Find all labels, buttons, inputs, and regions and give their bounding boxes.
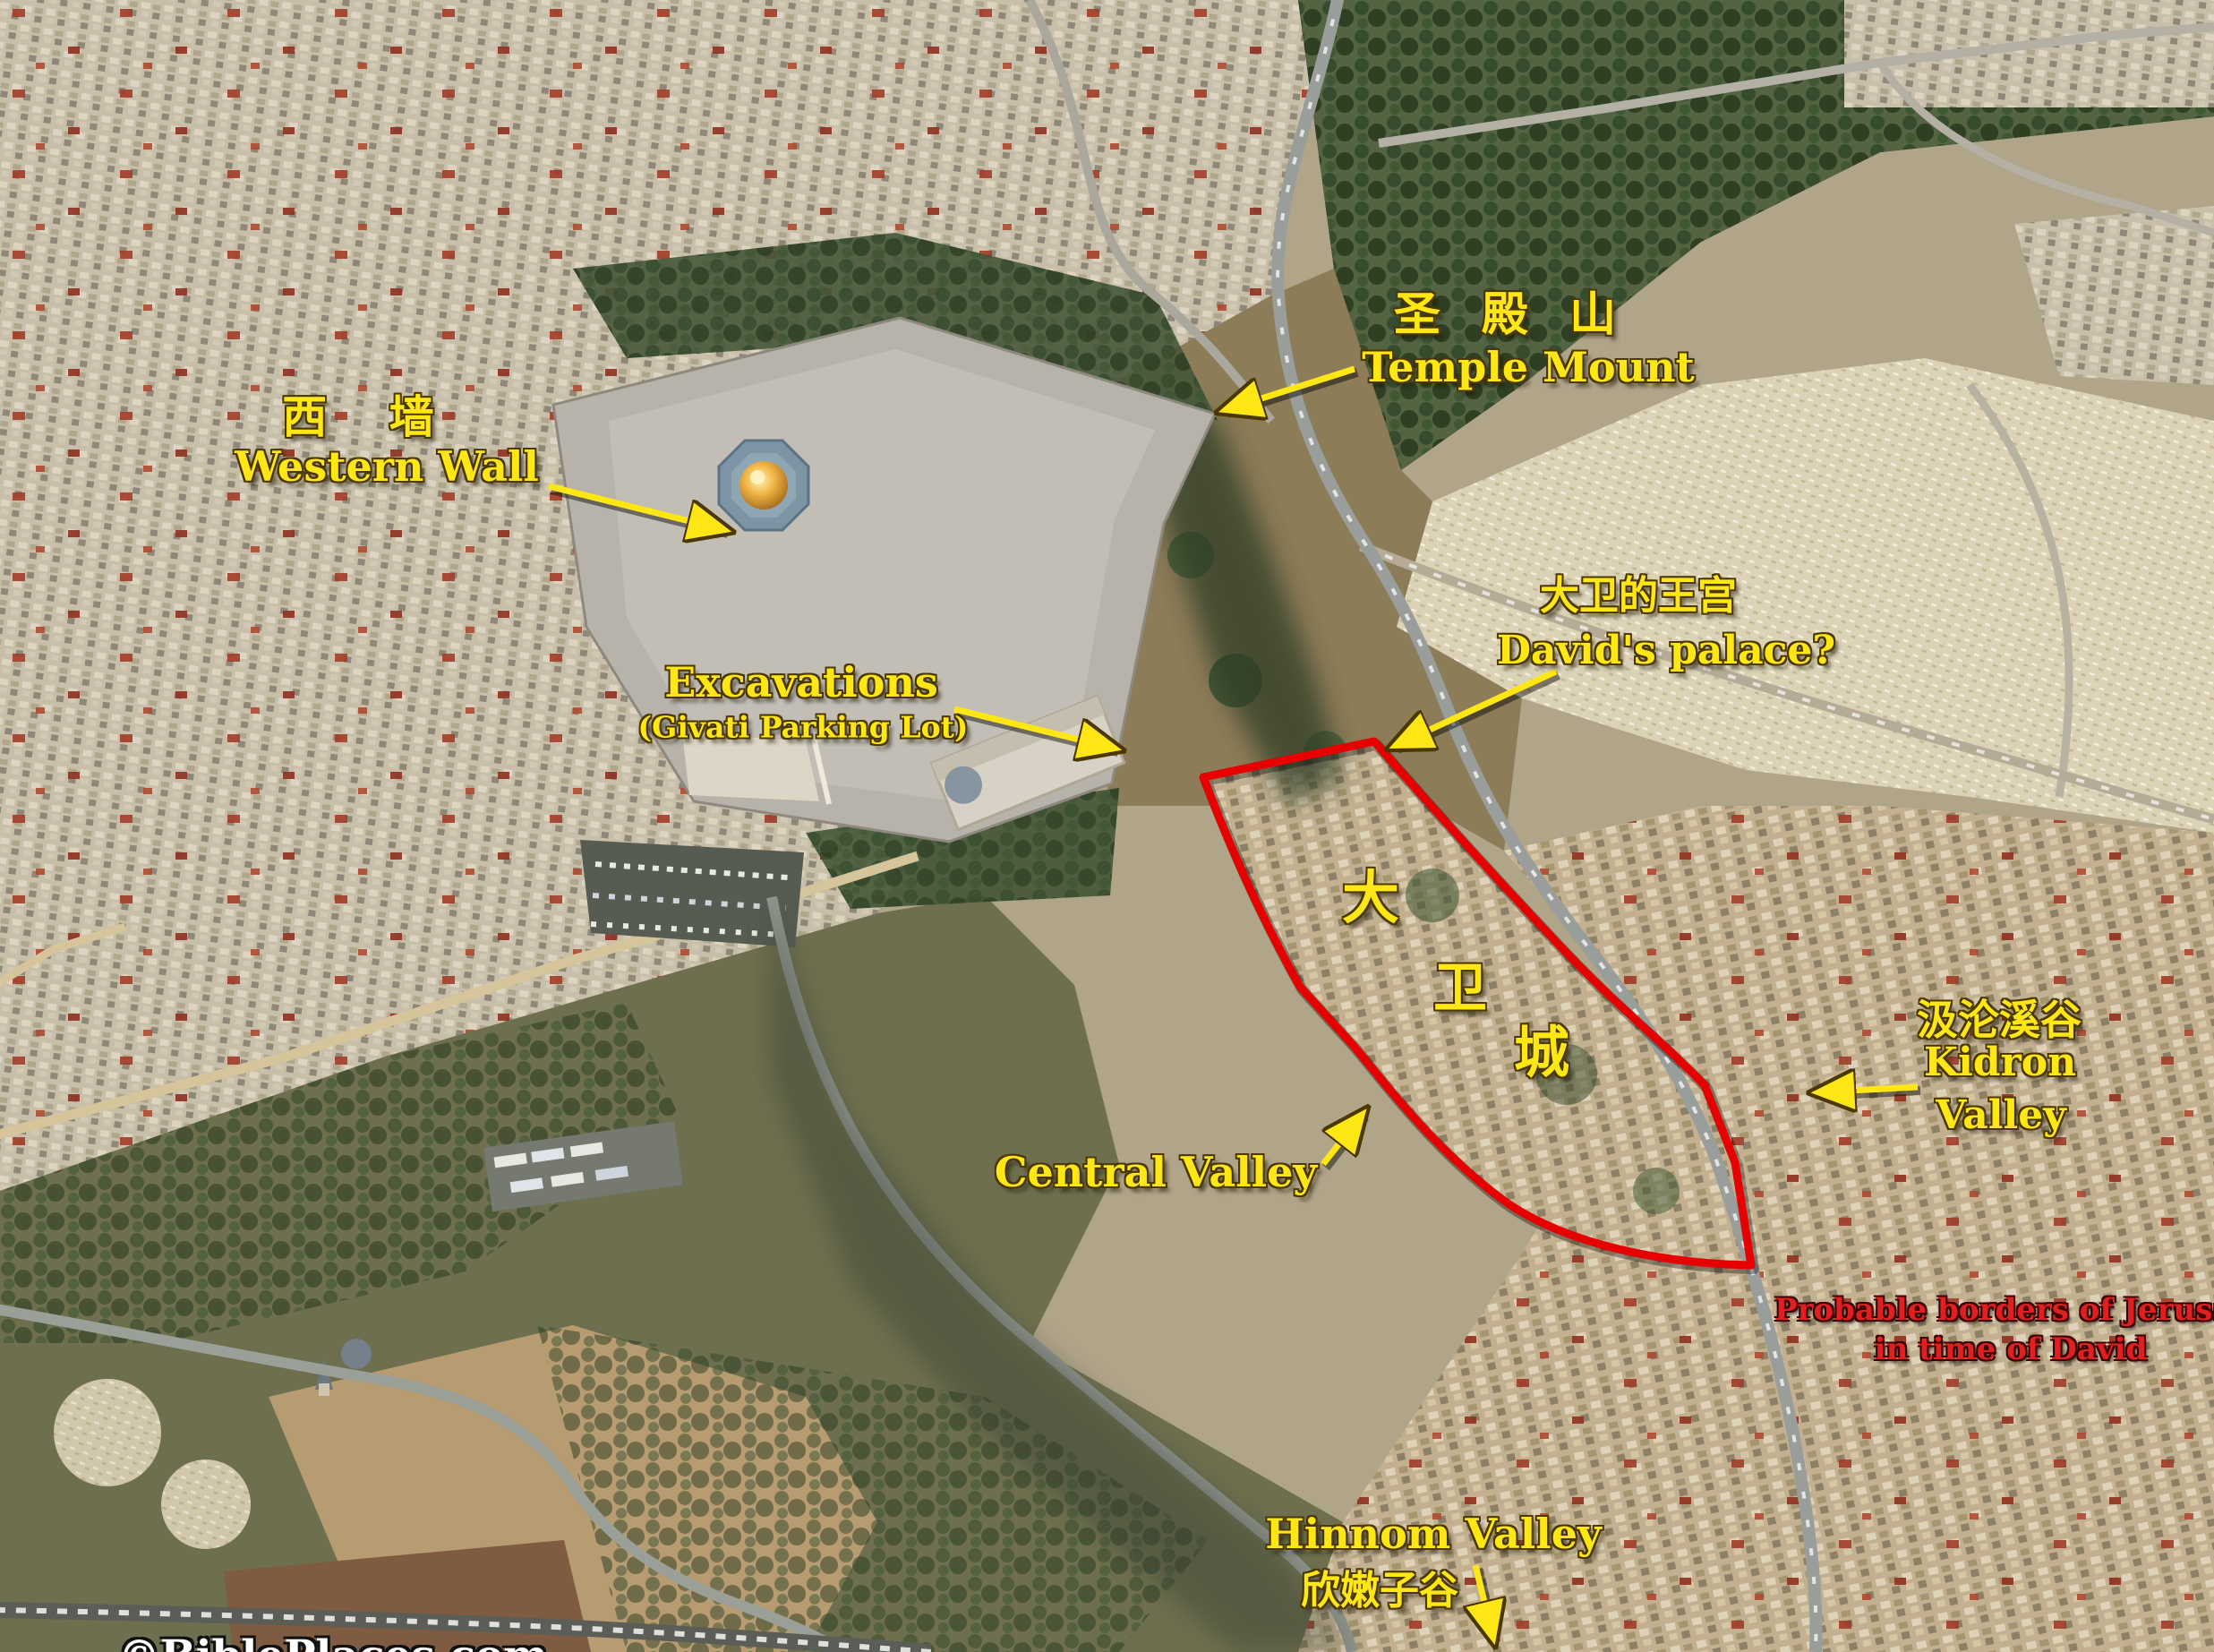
- hinnom-valley-label-zh: 欣嫩子谷: [1301, 1571, 1458, 1611]
- excavations-sublabel: (Givati Parking Lot): [638, 713, 969, 742]
- western-wall-label-zh: 西 墙: [282, 395, 457, 440]
- central-valley-label: Central Valley: [995, 1151, 1317, 1193]
- excavations-label: Excavations: [664, 662, 938, 703]
- borders-caption-line1: Probable borders of Jerusalem: [1774, 1295, 2214, 1325]
- watermark: ©BiblePlaces.com: [118, 1635, 548, 1652]
- kidron-valley-label-en1: Kidron: [1924, 1043, 2076, 1083]
- city-of-david-char-3: 城: [1514, 1025, 1569, 1081]
- city-of-david-char-1: 大: [1342, 870, 1399, 928]
- temple-mount-label-en: Temple Mount: [1362, 347, 1695, 388]
- davids-palace-label-en: David's palace?: [1497, 631, 1835, 671]
- temple-mount-label-zh: 圣 殿 山: [1394, 292, 1628, 338]
- davids-palace-label-zh: 大卫的王宫: [1540, 577, 1737, 616]
- borders-caption-line2: in time of David: [1875, 1334, 2148, 1365]
- dome-of-the-rock: [717, 439, 810, 532]
- western-wall-label-en: Western Wall: [235, 446, 539, 487]
- annotated-aerial-photo-jerusalem: 圣 殿 山 Temple Mount 西 墙 Western Wall Exca…: [0, 0, 2214, 1652]
- hinnom-valley-label-en: Hinnom Valley: [1265, 1513, 1601, 1554]
- kidron-valley-label-zh: 汲沦溪谷: [1917, 999, 2082, 1040]
- kidron-valley-label-en2: Valley: [1936, 1096, 2066, 1135]
- city-of-david-char-2: 卫: [1433, 962, 1487, 1015]
- aerial-photo-background: [0, 0, 2214, 1652]
